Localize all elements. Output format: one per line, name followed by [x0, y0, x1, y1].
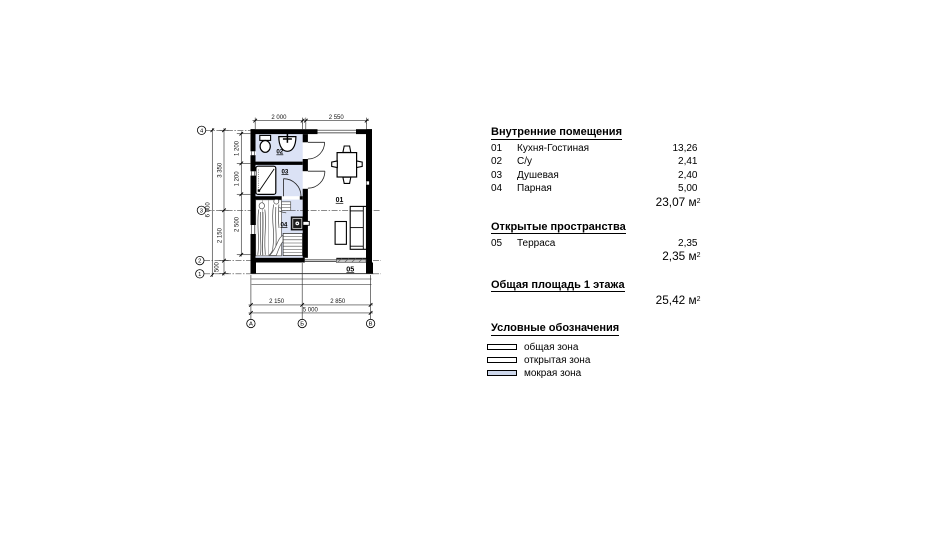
svg-text:2 000: 2 000 — [271, 115, 287, 121]
svg-text:Б: Б — [300, 322, 304, 328]
svg-text:05: 05 — [346, 265, 354, 274]
svg-text:1: 1 — [198, 272, 201, 278]
svg-text:2 850: 2 850 — [330, 299, 346, 305]
svg-text:3: 3 — [200, 208, 203, 214]
svg-text:2: 2 — [198, 259, 201, 265]
svg-text:500: 500 — [215, 261, 221, 272]
svg-text:2 500: 2 500 — [235, 216, 241, 232]
svg-text:А: А — [249, 322, 253, 328]
svg-text:3 350: 3 350 — [217, 162, 223, 178]
svg-text:1 200: 1 200 — [235, 140, 241, 156]
svg-text:2 150: 2 150 — [269, 299, 285, 305]
svg-text:2 550: 2 550 — [329, 115, 345, 121]
svg-text:6 000: 6 000 — [206, 202, 212, 218]
svg-text:5 000: 5 000 — [303, 307, 319, 313]
svg-text:В: В — [369, 322, 373, 328]
svg-text:1 200: 1 200 — [235, 171, 241, 187]
svg-text:2 150: 2 150 — [217, 227, 223, 243]
